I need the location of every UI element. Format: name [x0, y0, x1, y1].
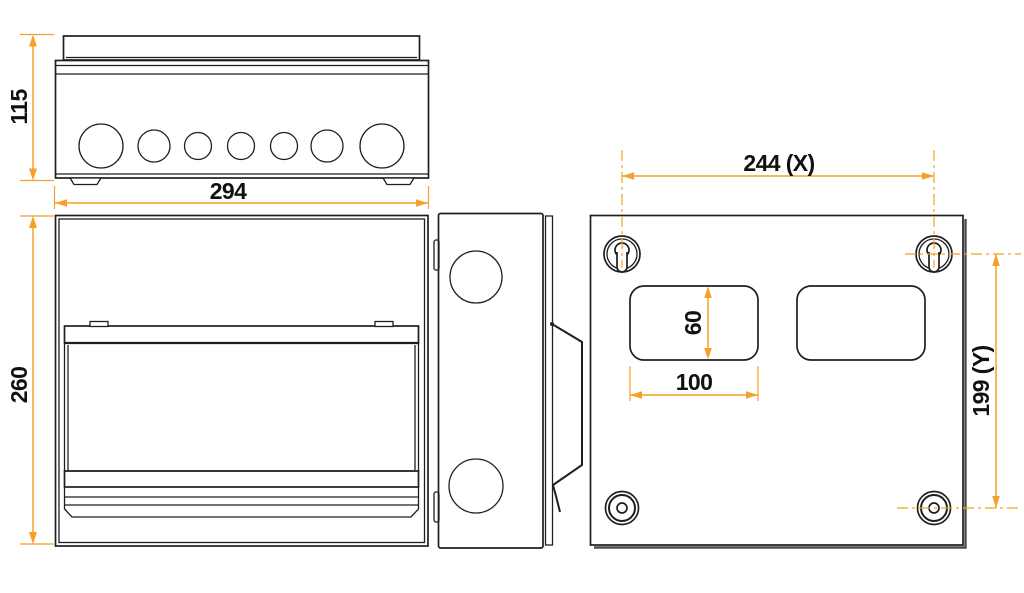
knockout-hole-small	[271, 133, 298, 160]
arrowhead-down	[29, 532, 37, 544]
knockout-hole-small	[228, 133, 255, 160]
screw-hole-inner-ring	[609, 495, 635, 521]
dimension-hole-spacing-y: 199 (Y)	[897, 254, 1021, 508]
back-view	[591, 216, 966, 548]
dimension-label-199y: 199 (Y)	[968, 345, 994, 416]
arrowhead-down	[704, 348, 712, 360]
back-panel-shadow-edge	[594, 219, 966, 548]
dimension-label-100: 100	[676, 369, 713, 395]
side-view	[434, 214, 582, 549]
consumer-unit-drawing: 115 294 260	[0, 0, 1024, 593]
arrowhead-up	[29, 35, 37, 47]
arrowhead-left	[55, 199, 67, 207]
arrowhead-left	[622, 172, 634, 180]
dimension-label-244x: 244 (X)	[743, 150, 814, 176]
knockout-hole-medium	[311, 130, 343, 162]
back-panel	[591, 216, 964, 546]
front-top-strip	[65, 326, 419, 343]
dimension-top-width: 294	[55, 178, 429, 209]
mounting-bracket-tail	[553, 485, 560, 512]
front-view	[56, 216, 429, 547]
bracket-pivot-dot	[550, 322, 554, 326]
arrowhead-down	[992, 496, 1000, 508]
screw-hole-outer-ring	[606, 492, 639, 525]
arrowhead-right	[416, 199, 428, 207]
screw-hole-bottom-left	[606, 492, 639, 525]
knockout-holes	[79, 124, 404, 168]
top-view-body	[56, 61, 429, 179]
front-lower-band	[65, 471, 419, 487]
top-view	[56, 36, 429, 185]
arrowhead-right	[922, 172, 934, 180]
dimension-label-115: 115	[6, 89, 32, 125]
arrowhead-up	[704, 287, 712, 299]
arrowhead-up	[992, 254, 1000, 266]
arrowhead-up	[29, 216, 37, 228]
dimension-front-height: 260	[6, 216, 54, 544]
arrowhead-left	[630, 391, 642, 399]
technical-drawing-canvas: 115 294 260	[0, 0, 1024, 593]
knockout-hole-large	[360, 124, 404, 168]
cable-cutout-right	[797, 286, 925, 360]
top-view-lid	[64, 36, 420, 60]
top-view-foot-right	[383, 178, 414, 185]
knockout-hole-small	[185, 133, 212, 160]
screw-hole-center	[617, 503, 627, 513]
dimension-label-60: 60	[680, 311, 706, 335]
dimension-hole-spacing-x: 244 (X)	[622, 150, 934, 268]
side-hole-top	[450, 251, 502, 303]
mounting-bracket-profile	[552, 324, 582, 485]
dimension-top-height: 115	[6, 35, 54, 181]
dimension-cutout-height: 60	[680, 287, 712, 360]
door-clip-right	[375, 322, 393, 327]
front-inner-frame	[59, 219, 425, 543]
knockout-hole-medium	[138, 130, 170, 162]
dimension-cutout-width: 100	[630, 366, 758, 401]
dimension-label-260: 260	[6, 367, 32, 404]
top-view-foot-left	[70, 178, 101, 185]
arrowhead-right	[746, 391, 758, 399]
knockout-hole-large	[79, 124, 123, 168]
side-rear-flange	[546, 216, 553, 545]
side-hole-bottom	[449, 459, 503, 513]
front-bottom-chamfer	[65, 505, 419, 517]
front-door-panel	[65, 343, 419, 471]
arrowhead-down	[29, 169, 37, 181]
dimension-label-294: 294	[210, 178, 247, 204]
door-clip-left	[90, 322, 108, 327]
